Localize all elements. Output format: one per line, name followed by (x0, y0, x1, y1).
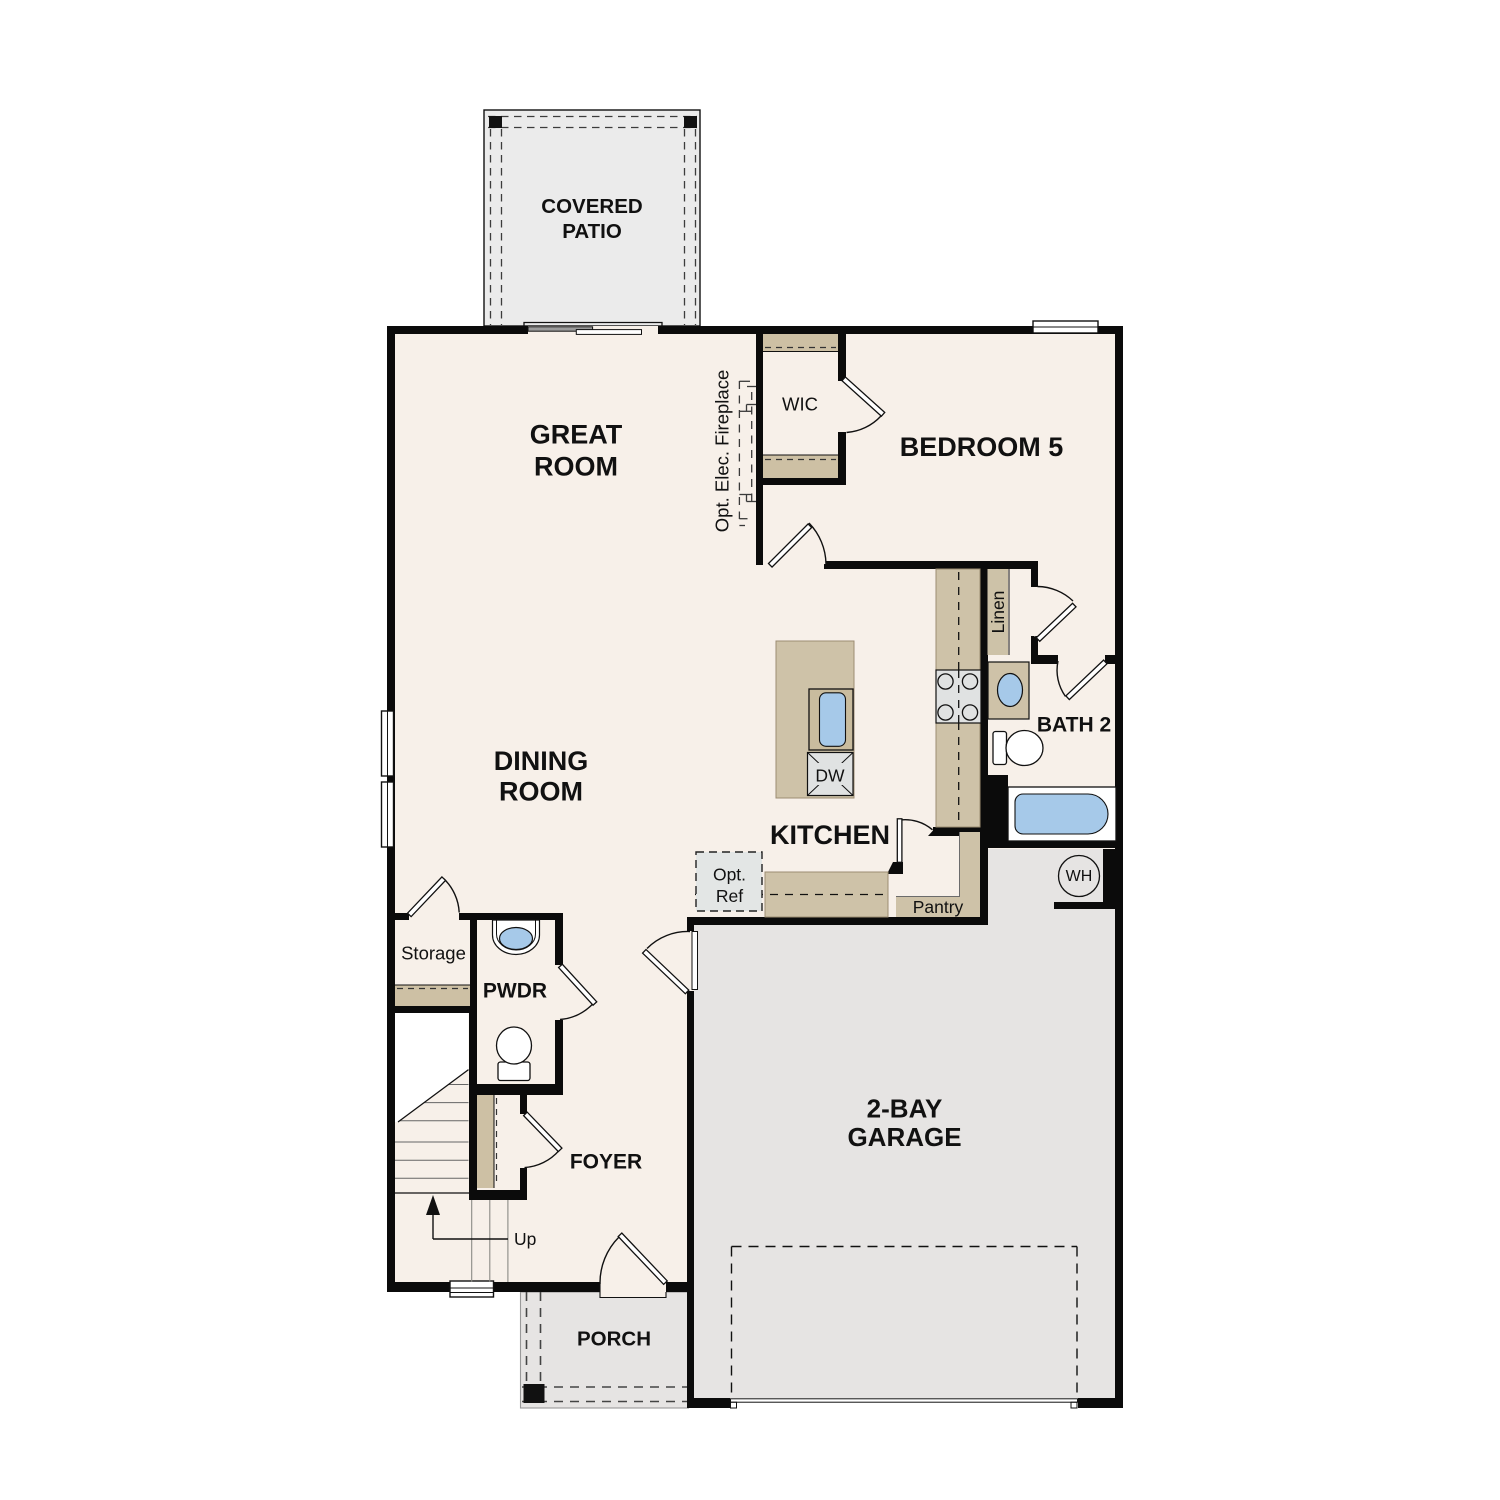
svg-text:Opt. Elec. Fireplace: Opt. Elec. Fireplace (712, 370, 733, 532)
svg-text:GREAT: GREAT (530, 420, 623, 450)
svg-text:2-BAY: 2-BAY (867, 1094, 943, 1124)
svg-text:BEDROOM 5: BEDROOM 5 (900, 432, 1064, 462)
svg-text:Up: Up (514, 1229, 536, 1249)
svg-text:WH: WH (1066, 868, 1093, 885)
svg-text:GARAGE: GARAGE (847, 1122, 961, 1152)
svg-text:COVERED: COVERED (541, 195, 642, 218)
svg-text:Opt.: Opt. (713, 865, 746, 885)
svg-text:Storage: Storage (401, 943, 466, 964)
svg-text:PATIO: PATIO (562, 220, 622, 243)
svg-text:DW: DW (815, 766, 845, 786)
svg-text:FOYER: FOYER (570, 1151, 642, 1174)
svg-text:Linen: Linen (988, 591, 1008, 634)
svg-text:PWDR: PWDR (483, 980, 547, 1003)
svg-text:Pantry: Pantry (913, 897, 964, 917)
svg-text:BATH 2: BATH 2 (1037, 714, 1111, 737)
svg-text:PORCH: PORCH (577, 1328, 651, 1351)
svg-text:ROOM: ROOM (499, 776, 583, 806)
svg-text:ROOM: ROOM (534, 452, 618, 482)
svg-text:DINING: DINING (494, 746, 589, 776)
svg-text:WIC: WIC (782, 394, 818, 415)
svg-text:KITCHEN: KITCHEN (770, 820, 890, 850)
svg-text:Ref: Ref (716, 886, 743, 906)
